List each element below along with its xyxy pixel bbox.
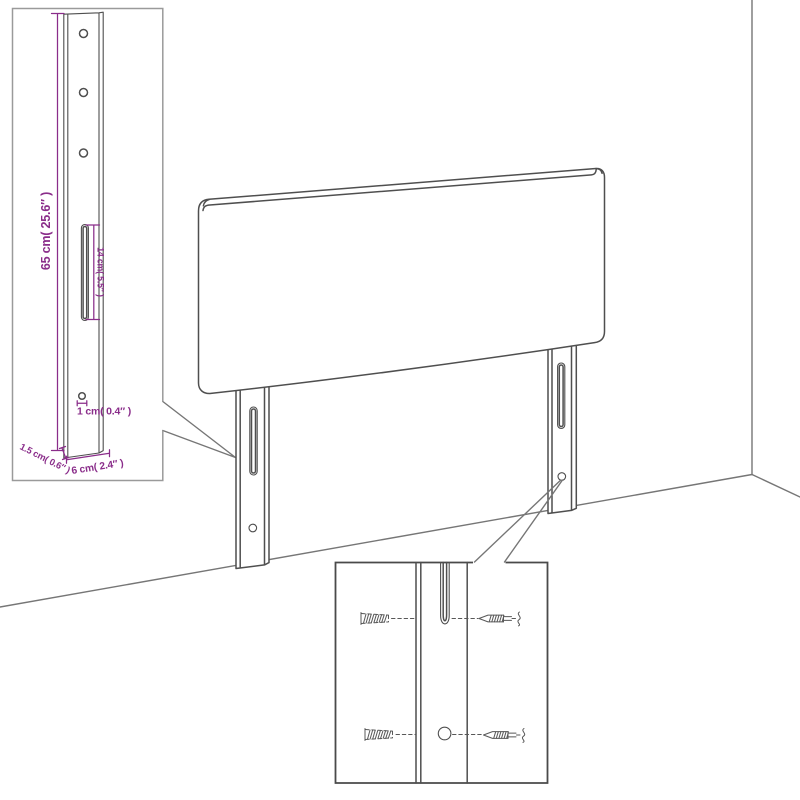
screw-icon [479, 612, 520, 626]
detail-slot [441, 563, 450, 624]
diagram-canvas: 65 cm( 25.6″ ) 14 cm( 5.5″ ) 1 cm( 0.4″ … [0, 0, 800, 800]
inset1-leader-lines [163, 402, 236, 458]
hole-dimension-label: 1 cm( 0.4″ ) [77, 406, 131, 418]
headboard-panel [199, 168, 605, 393]
height-dimension-label: 65 cm( 25.6″ ) [39, 192, 53, 270]
inset-leg-dimension-box: 65 cm( 25.6″ ) 14 cm( 5.5″ ) 1 cm( 0.4″ … [13, 9, 163, 481]
slot-dimension-label: 14 cm( 5.5″ ) [96, 247, 106, 297]
leg-low-hole [80, 149, 88, 157]
headboard-dimension-diagram: 65 cm( 25.6″ ) 14 cm( 5.5″ ) 1 cm( 0.4″ … [0, 0, 800, 800]
wall-plug-icon [365, 729, 393, 741]
alignment-dashes [392, 619, 483, 735]
headboard-right-leg [548, 336, 576, 514]
detail-mount-hole [438, 727, 451, 740]
width-dimension-label: 6 cm( 2.4″ ) [71, 458, 124, 477]
leg-small-hole [79, 393, 86, 400]
wall-plug-icon [361, 613, 389, 625]
mounting-detail-box [336, 563, 548, 784]
leg-top-hole [80, 30, 88, 38]
detail-leg-drawing [64, 12, 103, 458]
headboard-left-leg [236, 383, 269, 569]
detail-leg-edges [416, 563, 467, 784]
screw-icon [484, 729, 525, 743]
leg-mid-hole [80, 89, 88, 97]
height-dimension-line [52, 14, 65, 451]
